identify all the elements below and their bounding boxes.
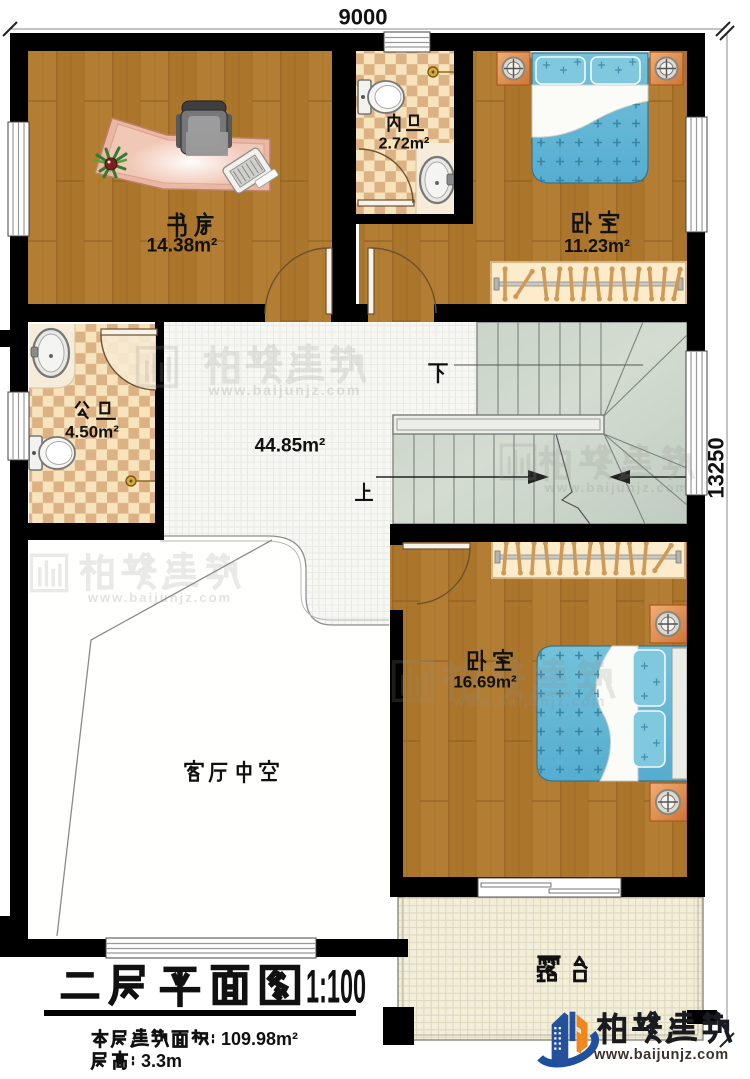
svg-text:3.3m: 3.3m: [141, 1051, 182, 1071]
svg-text:44.85m²: 44.85m²: [255, 436, 326, 457]
svg-text:www.baijunjz.com: www.baijunjz.com: [208, 382, 362, 398]
svg-text:109.98m²: 109.98m²: [221, 1029, 298, 1049]
svg-text:9000: 9000: [339, 5, 388, 30]
svg-text:www.baijunjz.com: www.baijunjz.com: [87, 590, 232, 605]
svg-text:www.baijunjz.com: www.baijunjz.com: [453, 693, 607, 709]
svg-text:1:100: 1:100: [306, 959, 366, 1012]
svg-text:www.baijunjz.com: www.baijunjz.com: [593, 1047, 729, 1063]
svg-text:16.69m²: 16.69m²: [453, 673, 517, 692]
svg-text:11.23m²: 11.23m²: [564, 236, 630, 256]
svg-text:2.72m²: 2.72m²: [379, 136, 430, 153]
svg-text:13250: 13250: [704, 437, 729, 498]
svg-text:4.50m²: 4.50m²: [65, 423, 119, 442]
svg-text:www.baijunjz.com: www.baijunjz.com: [544, 480, 689, 495]
svg-text:14.38m²: 14.38m²: [147, 236, 218, 257]
